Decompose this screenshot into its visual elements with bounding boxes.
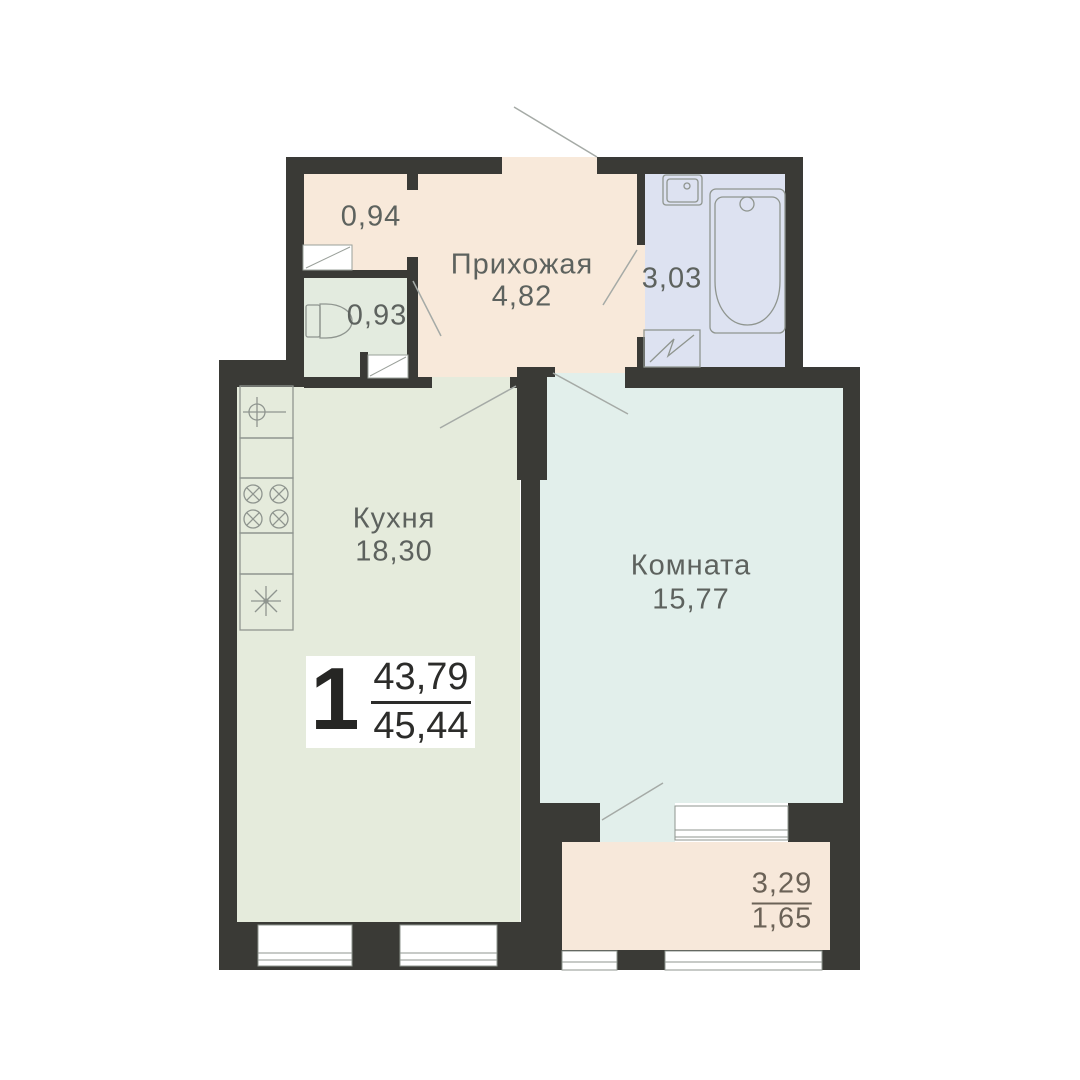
- wall-divider-lower: [521, 480, 540, 803]
- balcony-door-floor: [600, 803, 675, 842]
- wall-balcony-left: [521, 842, 562, 970]
- wall-room-bottom-right: [788, 803, 843, 842]
- wall-closet-stub: [407, 174, 418, 190]
- living-room-name-label: Комната: [631, 550, 752, 583]
- bathroom-area-label: 3,03: [642, 263, 702, 296]
- kitchen-area-label: 18,30: [355, 536, 433, 569]
- wall-divider-upper: [517, 377, 547, 480]
- area-fraction: 43,79 45,44: [371, 658, 470, 747]
- total-area-value: 45,44: [373, 704, 468, 747]
- wall-room-top: [625, 367, 860, 388]
- wall-closet-wc: [304, 270, 418, 278]
- window-icon: [675, 806, 788, 840]
- rooms-count: 1: [310, 655, 359, 743]
- wall-wc-door-post: [360, 352, 368, 382]
- closet-area-label: 0,94: [341, 201, 401, 234]
- wall-balcony-bottom: [562, 950, 830, 970]
- wall-left-upper: [286, 157, 304, 387]
- wall-top-right: [597, 157, 803, 174]
- hallway-area-label: 4,82: [492, 281, 552, 314]
- wall-bath-left-upper: [637, 174, 645, 245]
- kitchen-name-label: Кухня: [353, 503, 436, 536]
- wall-divider-cap: [517, 367, 555, 377]
- wc-area-label: 0,93: [347, 300, 407, 333]
- wall-left-kitchen: [219, 360, 237, 970]
- floor-plan: 0,94 Прихожая 4,82 3,03 0,93 Кухня 18,30…: [0, 0, 1080, 1080]
- living-room-area-label: 15,77: [652, 584, 730, 617]
- hallway-name-label: Прихожая: [451, 249, 593, 282]
- wall-right-room: [843, 373, 860, 842]
- kitchen-floor: [237, 377, 520, 922]
- wall-right-upper: [785, 157, 803, 367]
- balcony-area-full-value: 3,29: [752, 868, 812, 905]
- balcony-area-counted-label: 1,65: [752, 903, 812, 936]
- wall-balcony-right: [830, 842, 860, 970]
- wall-top-left: [286, 157, 502, 174]
- balcony-area-full-label: 3,29: [752, 868, 812, 901]
- wall-divider-stub: [510, 377, 517, 388]
- wall-bath-left-lower: [637, 337, 645, 368]
- living-area-value: 43,79: [371, 658, 470, 704]
- wall-room-bottom-left: [521, 803, 600, 842]
- apartment-summary-badge: 1 43,79 45,44: [306, 656, 475, 748]
- wall-bottom-kitchen: [219, 922, 562, 970]
